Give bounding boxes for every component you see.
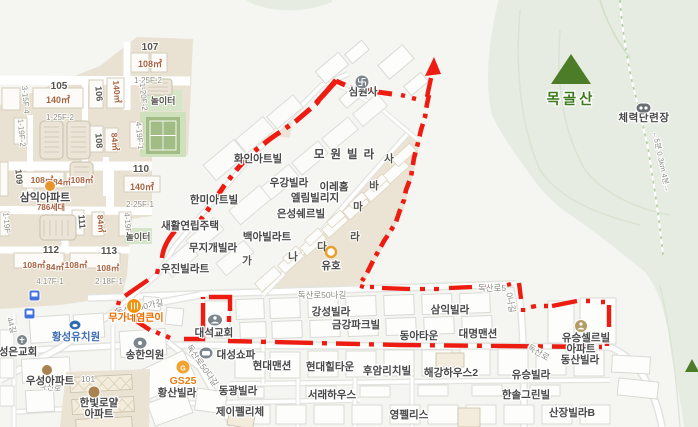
svg-text:무지개빌라: 무지개빌라 (189, 241, 238, 254)
svg-text:산장빌라B: 산장빌라B (549, 406, 596, 419)
svg-text:동아타운: 동아타운 (400, 329, 439, 342)
svg-text:해강하우스2: 해강하우스2 (424, 366, 478, 379)
svg-text:140㎡: 140㎡ (130, 181, 154, 192)
svg-text:2-18F-1: 2-18F-1 (95, 277, 124, 286)
svg-text:108㎡: 108㎡ (71, 175, 94, 185)
svg-text:서래하우스: 서래하우스 (308, 388, 357, 401)
svg-text:금강파크빌: 금강파크빌 (332, 318, 380, 331)
svg-text:107: 107 (142, 42, 159, 53)
svg-text:108㎡: 108㎡ (138, 58, 162, 69)
svg-text:108㎡: 108㎡ (65, 260, 88, 270)
svg-text:105: 105 (51, 81, 68, 92)
svg-text:유승빌라: 유승빌라 (512, 368, 551, 381)
svg-text:113: 113 (101, 246, 118, 257)
svg-text:GS25: GS25 (170, 375, 197, 387)
svg-text:한솔그린빌: 한솔그린빌 (502, 388, 550, 401)
svg-text:대명맨션: 대명맨션 (459, 327, 498, 340)
svg-text:1-25F-2: 1-25F-2 (46, 113, 75, 122)
svg-text:놀이터: 놀이터 (151, 95, 176, 106)
svg-text:나: 나 (288, 250, 298, 263)
svg-text:황성유치원: 황성유치원 (52, 330, 100, 343)
svg-text:화인아트빌: 화인아트빌 (234, 152, 282, 165)
svg-text:108㎡: 108㎡ (23, 260, 46, 270)
svg-text:아파트: 아파트 (567, 342, 596, 355)
svg-text:백아빌라트: 백아빌라트 (243, 230, 292, 243)
svg-text:삼익빌라: 삼익빌라 (431, 303, 470, 316)
svg-text:대석교회: 대석교회 (195, 326, 234, 339)
svg-text:놀이터: 놀이터 (126, 231, 151, 242)
svg-text:140㎡: 140㎡ (111, 80, 123, 104)
svg-text:은성쉐르빌: 은성쉐르빌 (277, 207, 325, 220)
svg-text:엘림빌리지: 엘림빌리지 (291, 191, 339, 204)
svg-text:109: 109 (13, 169, 24, 185)
svg-text:모원빌라: 모원빌라 (314, 147, 380, 161)
svg-text:마: 마 (353, 200, 363, 213)
svg-text:현대힐타운: 현대힐타운 (306, 360, 355, 373)
svg-text:112: 112 (43, 245, 60, 256)
svg-text:84㎡: 84㎡ (95, 214, 107, 233)
svg-text:110: 110 (133, 164, 150, 175)
svg-text:84㎡: 84㎡ (46, 262, 64, 272)
svg-text:목골산: 목골산 (546, 91, 595, 108)
svg-text:영펠리스: 영펠리스 (390, 408, 429, 421)
svg-text:유호: 유호 (321, 259, 341, 272)
svg-text:아파트: 아파트 (85, 407, 114, 420)
svg-text:대성쇼파: 대성쇼파 (217, 348, 256, 361)
svg-text:라: 라 (350, 230, 360, 243)
svg-text:바: 바 (369, 179, 379, 192)
svg-text:111: 111 (76, 214, 87, 229)
svg-text:4.17F-1: 4.17F-1 (36, 277, 64, 286)
svg-text:101: 101 (81, 374, 95, 384)
svg-text:106: 106 (93, 86, 104, 102)
svg-text:후암리치빌: 후암리치빌 (363, 364, 411, 377)
svg-text:삼익아파트: 삼익아파트 (20, 190, 71, 204)
svg-text:강성빌라: 강성빌라 (312, 305, 351, 318)
svg-text:가: 가 (242, 254, 252, 267)
svg-text:G: G (180, 366, 186, 373)
svg-text:108㎡: 108㎡ (97, 263, 120, 273)
svg-text:황산빌라: 황산빌라 (158, 386, 197, 399)
svg-text:786세대: 786세대 (37, 202, 65, 212)
svg-text:송한의원: 송한의원 (126, 348, 165, 361)
svg-text:140㎡: 140㎡ (46, 94, 70, 105)
svg-text:제이펠리체: 제이펠리체 (216, 405, 264, 418)
svg-text:108: 108 (93, 133, 104, 149)
svg-text:사: 사 (384, 152, 394, 165)
svg-text:84㎡: 84㎡ (109, 132, 121, 151)
svg-text:현대맨션: 현대맨션 (253, 359, 292, 372)
svg-text:독산로5: 독산로5 (478, 283, 506, 293)
svg-text:4-19F: 4-19F (122, 212, 133, 234)
svg-text:1-19F: 1-19F (1, 212, 12, 234)
svg-text:새활연립주택: 새활연립주택 (161, 219, 219, 232)
svg-text:우진빌라트: 우진빌라트 (161, 262, 210, 275)
svg-text:2-25F-1: 2-25F-1 (126, 200, 155, 209)
svg-text:독산로50나길: 독산로50나길 (298, 290, 347, 300)
svg-text:우강빌라: 우강빌라 (270, 176, 309, 189)
svg-text:우성아파트: 우성아파트 (26, 374, 75, 387)
svg-text:한미아트빌: 한미아트빌 (190, 193, 238, 206)
svg-text:동광빌라: 동광빌라 (219, 384, 258, 397)
svg-text:성은교회: 성은교회 (0, 345, 37, 358)
